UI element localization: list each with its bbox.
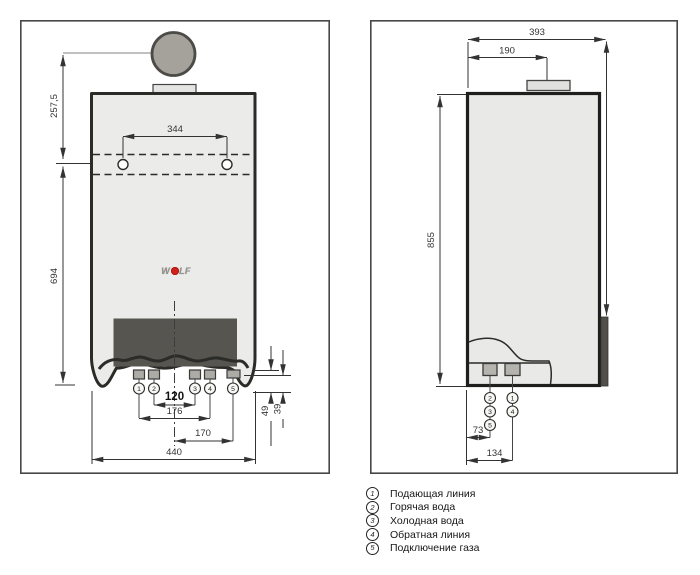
- conn-num-5: 5: [231, 386, 235, 393]
- side-view: 2 3 5 1 4 393 190 855 73: [371, 21, 677, 473]
- wolf-logo: W LF: [156, 264, 196, 278]
- dim-offset-a: 73: [473, 425, 484, 436]
- wolf-logo-suffix: LF: [179, 267, 191, 276]
- dim-pair-outer: 176: [167, 406, 183, 417]
- conn-num-4: 4: [208, 386, 212, 393]
- dim-offset-top: 257,5: [49, 94, 60, 118]
- legend-number-badge: 2: [366, 501, 379, 514]
- connection-legend: 1 Подающая линия 2 Горячая вода 3 Холодн…: [366, 487, 479, 555]
- flue-pipe-icon: [152, 33, 195, 76]
- legend-number-badge: 5: [366, 542, 379, 555]
- legend-label: Горячая вода: [390, 501, 455, 513]
- legend-label: Обратная линия: [390, 529, 470, 541]
- dim-height-front: 694: [49, 268, 60, 284]
- boiler-dimension-drawing: 1 2 3 4 5: [0, 0, 700, 575]
- legend-item: 5 Подключение газа: [366, 541, 479, 555]
- legend-number-badge: 1: [366, 487, 379, 500]
- side-num-3: 3: [488, 409, 492, 416]
- boiler-casing-side: [468, 94, 600, 386]
- dim-total-width: 440: [166, 447, 182, 458]
- dim-flue-offset: 190: [499, 46, 515, 57]
- wolf-logo-red-dot-icon: [171, 267, 179, 275]
- dim-proj-b: 39: [273, 404, 284, 415]
- side-num-5: 5: [488, 423, 492, 430]
- dim-pair-center: 120: [165, 391, 184, 403]
- legend-item: 3 Холодная вода: [366, 514, 479, 528]
- legend-number-badge: 4: [366, 528, 379, 541]
- conn-num-3: 3: [193, 386, 197, 393]
- legend-item: 2 Горячая вода: [366, 501, 479, 515]
- dim-offset-b: 134: [487, 448, 503, 459]
- dim-height-side: 855: [426, 232, 437, 248]
- front-view: 1 2 3 4 5: [21, 21, 329, 473]
- dim-gas-offset: 170: [195, 428, 211, 439]
- legend-label: Подключение газа: [390, 542, 479, 554]
- legend-item: 1 Подающая линия: [366, 487, 479, 501]
- side-num-2: 2: [488, 396, 492, 403]
- mounting-bracket-bar: [601, 317, 608, 386]
- dim-total-depth: 393: [529, 27, 545, 38]
- dim-proj-a: 49: [260, 406, 271, 417]
- legend-label: Холодная вода: [390, 515, 464, 527]
- conn-num-1: 1: [137, 386, 141, 393]
- side-num-1: 1: [511, 396, 515, 403]
- wolf-logo-prefix: W: [161, 267, 170, 276]
- flue-collar-side: [527, 81, 570, 91]
- dim-hole-spacing: 344: [167, 124, 183, 135]
- legend-item: 4 Обратная линия: [366, 528, 479, 542]
- drawing-canvas: 1 2 3 4 5: [0, 0, 700, 575]
- mounting-hole-right: [222, 160, 232, 170]
- legend-number-badge: 3: [366, 514, 379, 527]
- conn-num-2: 2: [152, 386, 156, 393]
- mounting-hole-left: [118, 160, 128, 170]
- side-num-4: 4: [511, 409, 515, 416]
- legend-label: Подающая линия: [390, 488, 475, 500]
